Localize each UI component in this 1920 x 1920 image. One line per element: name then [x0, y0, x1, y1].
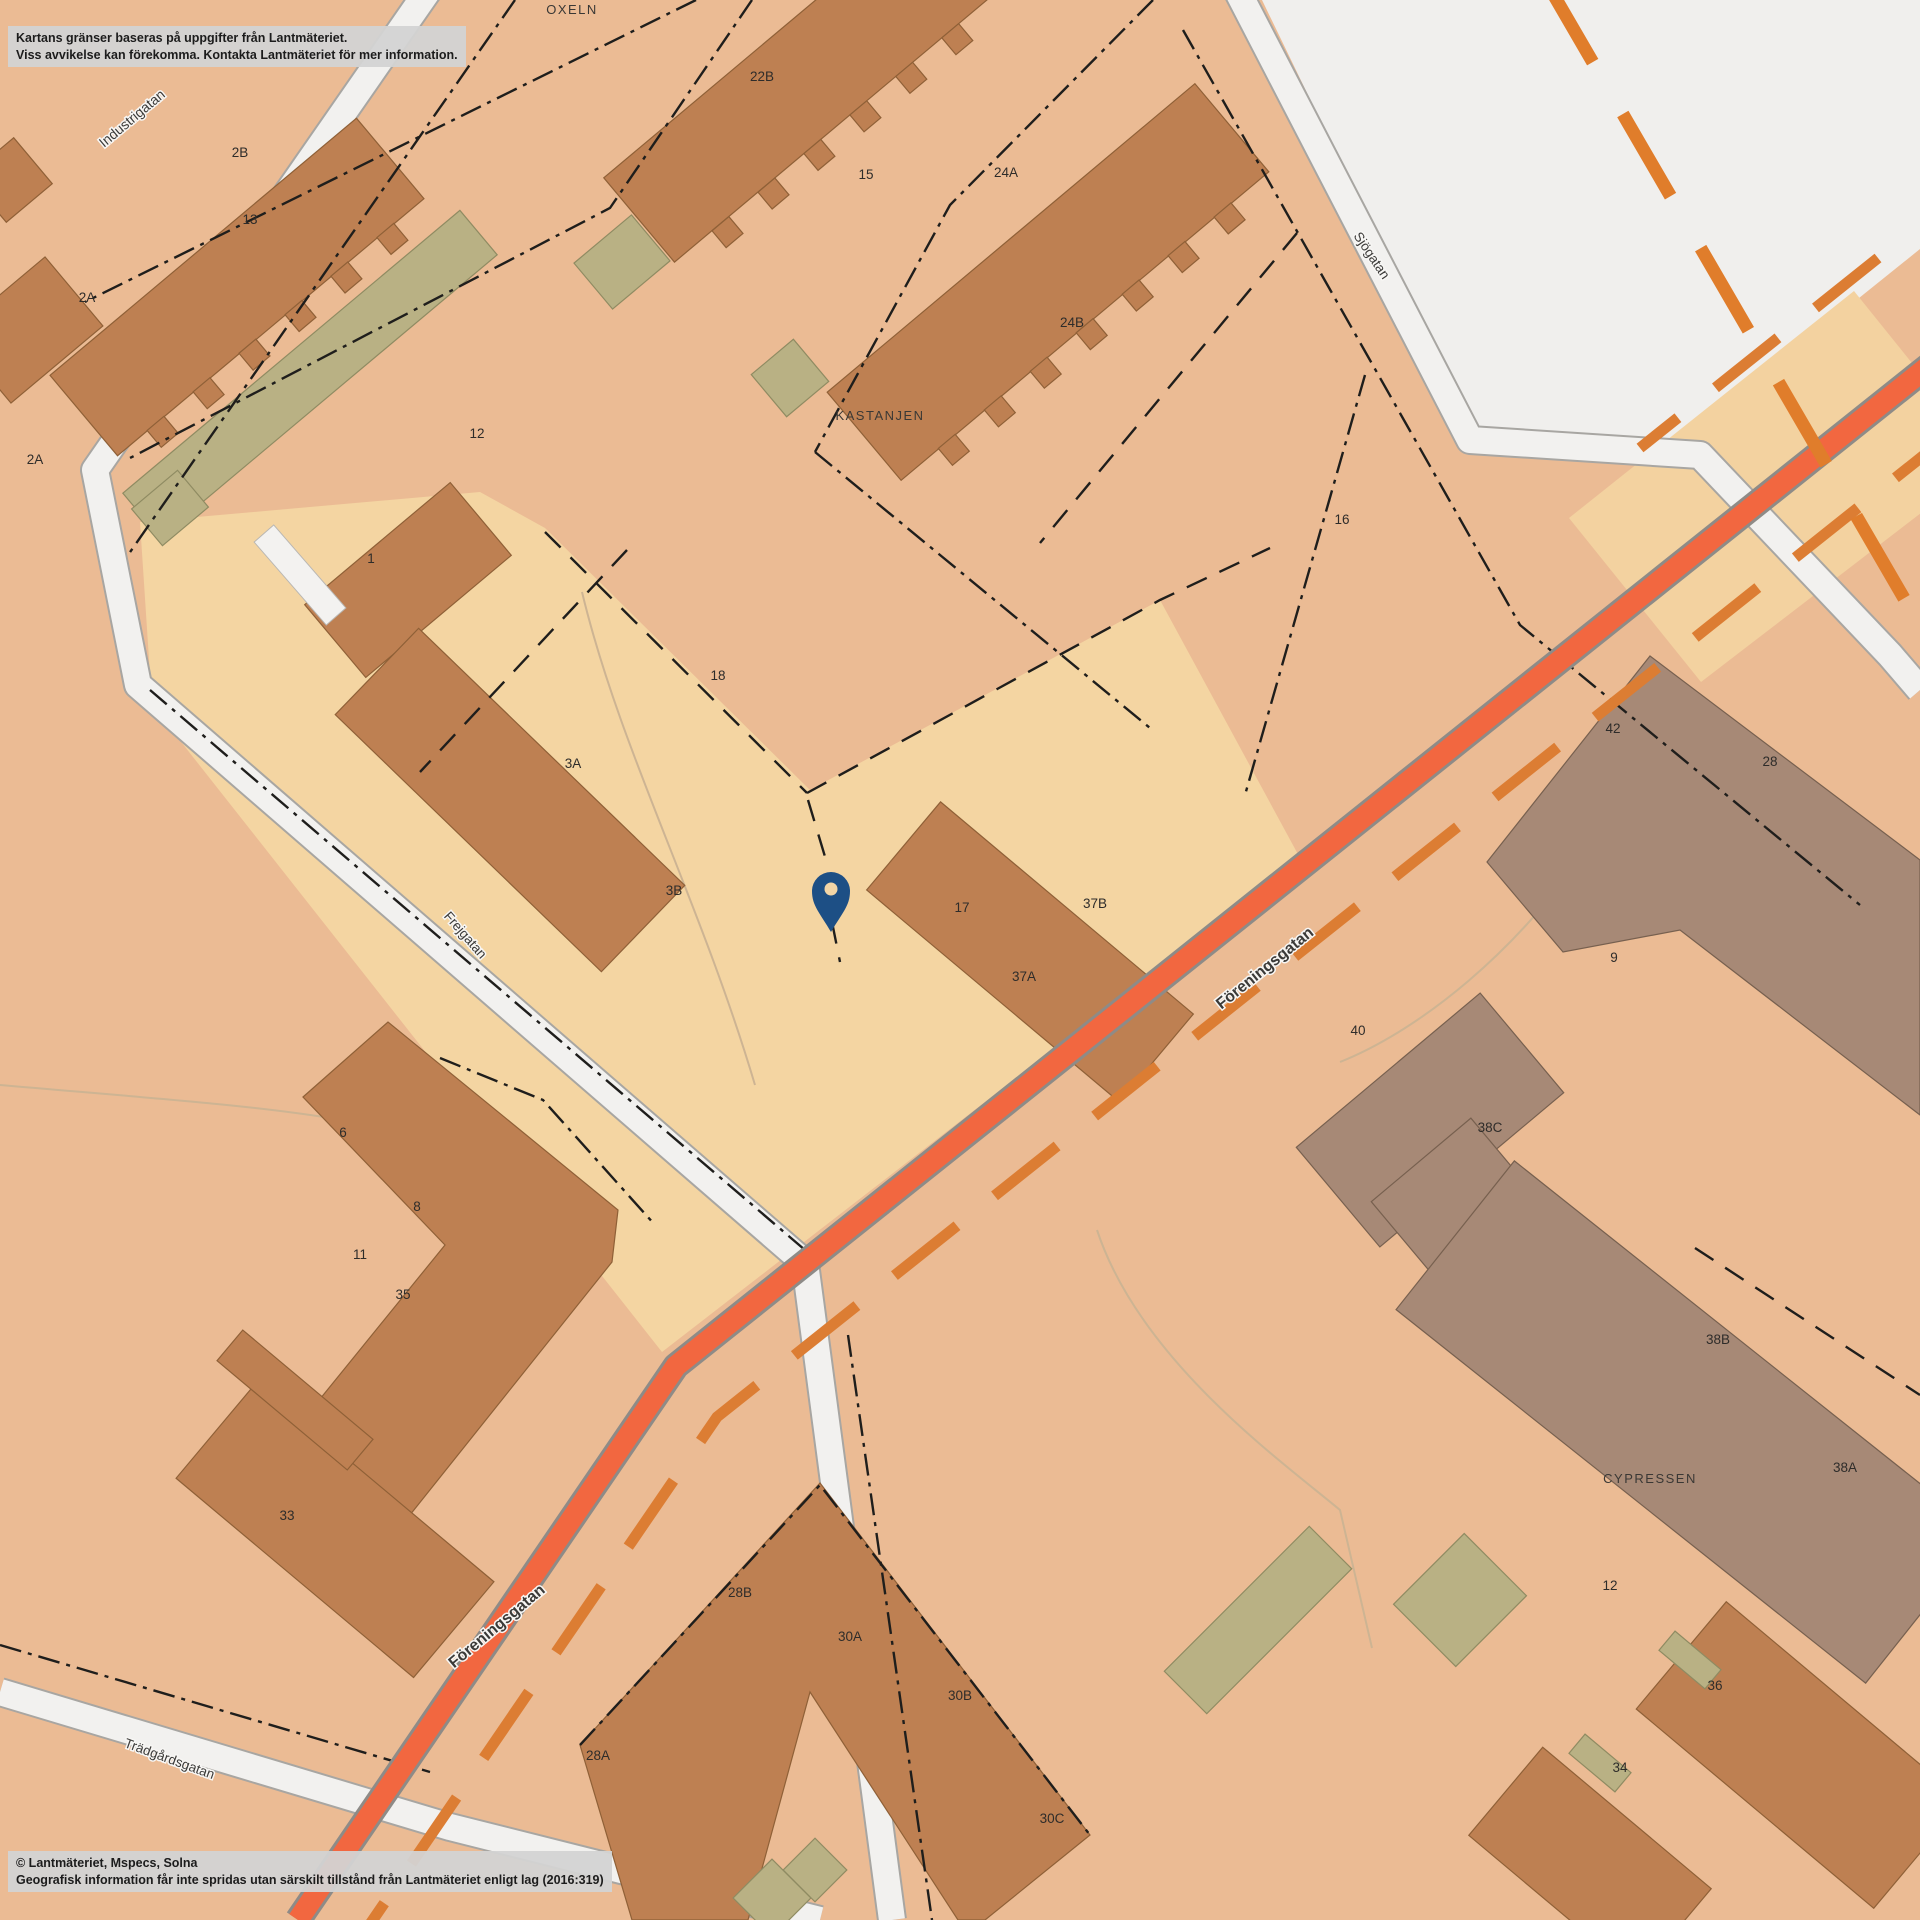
parcel-number-label: 3A: [565, 756, 582, 771]
parcel-number-label: 24A: [994, 165, 1018, 180]
parcel-number-label: 6: [339, 1125, 347, 1140]
parcel-number-label: 24B: [1060, 315, 1084, 330]
parcel-number-label: 28A: [586, 1748, 610, 1763]
parcel-number-label: 28B: [728, 1585, 752, 1600]
parcel-number-label: 34: [1612, 1760, 1628, 1775]
disclaimer-line2: Viss avvikelse kan förekomma. Kontakta L…: [16, 47, 458, 64]
parcel-number-label: 38C: [1478, 1120, 1503, 1135]
parcel-number-label: 42: [1605, 721, 1620, 736]
parcel-number-label: 12: [469, 426, 484, 441]
map-attribution-box: © Lantmäteriet, Mspecs, Solna Geografisk…: [8, 1851, 612, 1892]
map-stage[interactable]: IndustrigatanSjögatanFöreningsgatanFören…: [0, 0, 1920, 1920]
disclaimer-line1: Kartans gränser baseras på uppgifter frå…: [16, 30, 458, 47]
parcel-number-label: 30A: [838, 1629, 862, 1644]
parcel-number-label: 8: [413, 1199, 421, 1214]
parcel-number-label: 2A: [27, 452, 44, 467]
parcel-number-label: 16: [1334, 512, 1349, 527]
parcel-number-label: 37B: [1083, 896, 1107, 911]
attribution-line1: © Lantmäteriet, Mspecs, Solna: [16, 1855, 604, 1872]
parcel-number-label: 22B: [750, 69, 774, 84]
parcel-number-label: 38B: [1706, 1332, 1730, 1347]
parcel-number-label: 36: [1707, 1678, 1722, 1693]
parcel-number-label: 15: [858, 167, 873, 182]
parcel-number-label: 30B: [948, 1688, 972, 1703]
parcel-number-label: 38A: [1833, 1460, 1857, 1475]
parcel-number-label: 11: [353, 1247, 367, 1262]
block-name-label: CYPRESSEN: [1603, 1471, 1697, 1486]
map-canvas[interactable]: IndustrigatanSjögatanFöreningsgatanFören…: [0, 0, 1920, 1920]
parcel-number-label: 30C: [1040, 1811, 1065, 1826]
parcel-number-label: 40: [1350, 1023, 1365, 1038]
parcel-number-label: 12: [1602, 1578, 1617, 1593]
parcel-number-label: 3B: [666, 883, 683, 898]
parcel-number-label: 35: [395, 1287, 410, 1302]
parcel-number-label: 18: [710, 668, 725, 683]
block-name-label: OXELN: [546, 2, 598, 17]
block-name-label: KASTANJEN: [835, 408, 924, 423]
parcel-number-label: 17: [954, 900, 969, 915]
parcel-number-label: 9: [1610, 950, 1618, 965]
map-disclaimer-box: Kartans gränser baseras på uppgifter frå…: [8, 26, 466, 67]
parcel-number-label: 28: [1762, 754, 1777, 769]
parcel-number-label: 13: [242, 212, 257, 227]
parcel-number-label: 2B: [232, 145, 249, 160]
parcel-number-label: 2A: [79, 290, 96, 305]
parcel-number-label: 1: [367, 551, 375, 566]
parcel-number-label: 33: [279, 1508, 294, 1523]
parcel-number-label: 37A: [1012, 969, 1036, 984]
attribution-line2: Geografisk information får inte spridas …: [16, 1872, 604, 1889]
